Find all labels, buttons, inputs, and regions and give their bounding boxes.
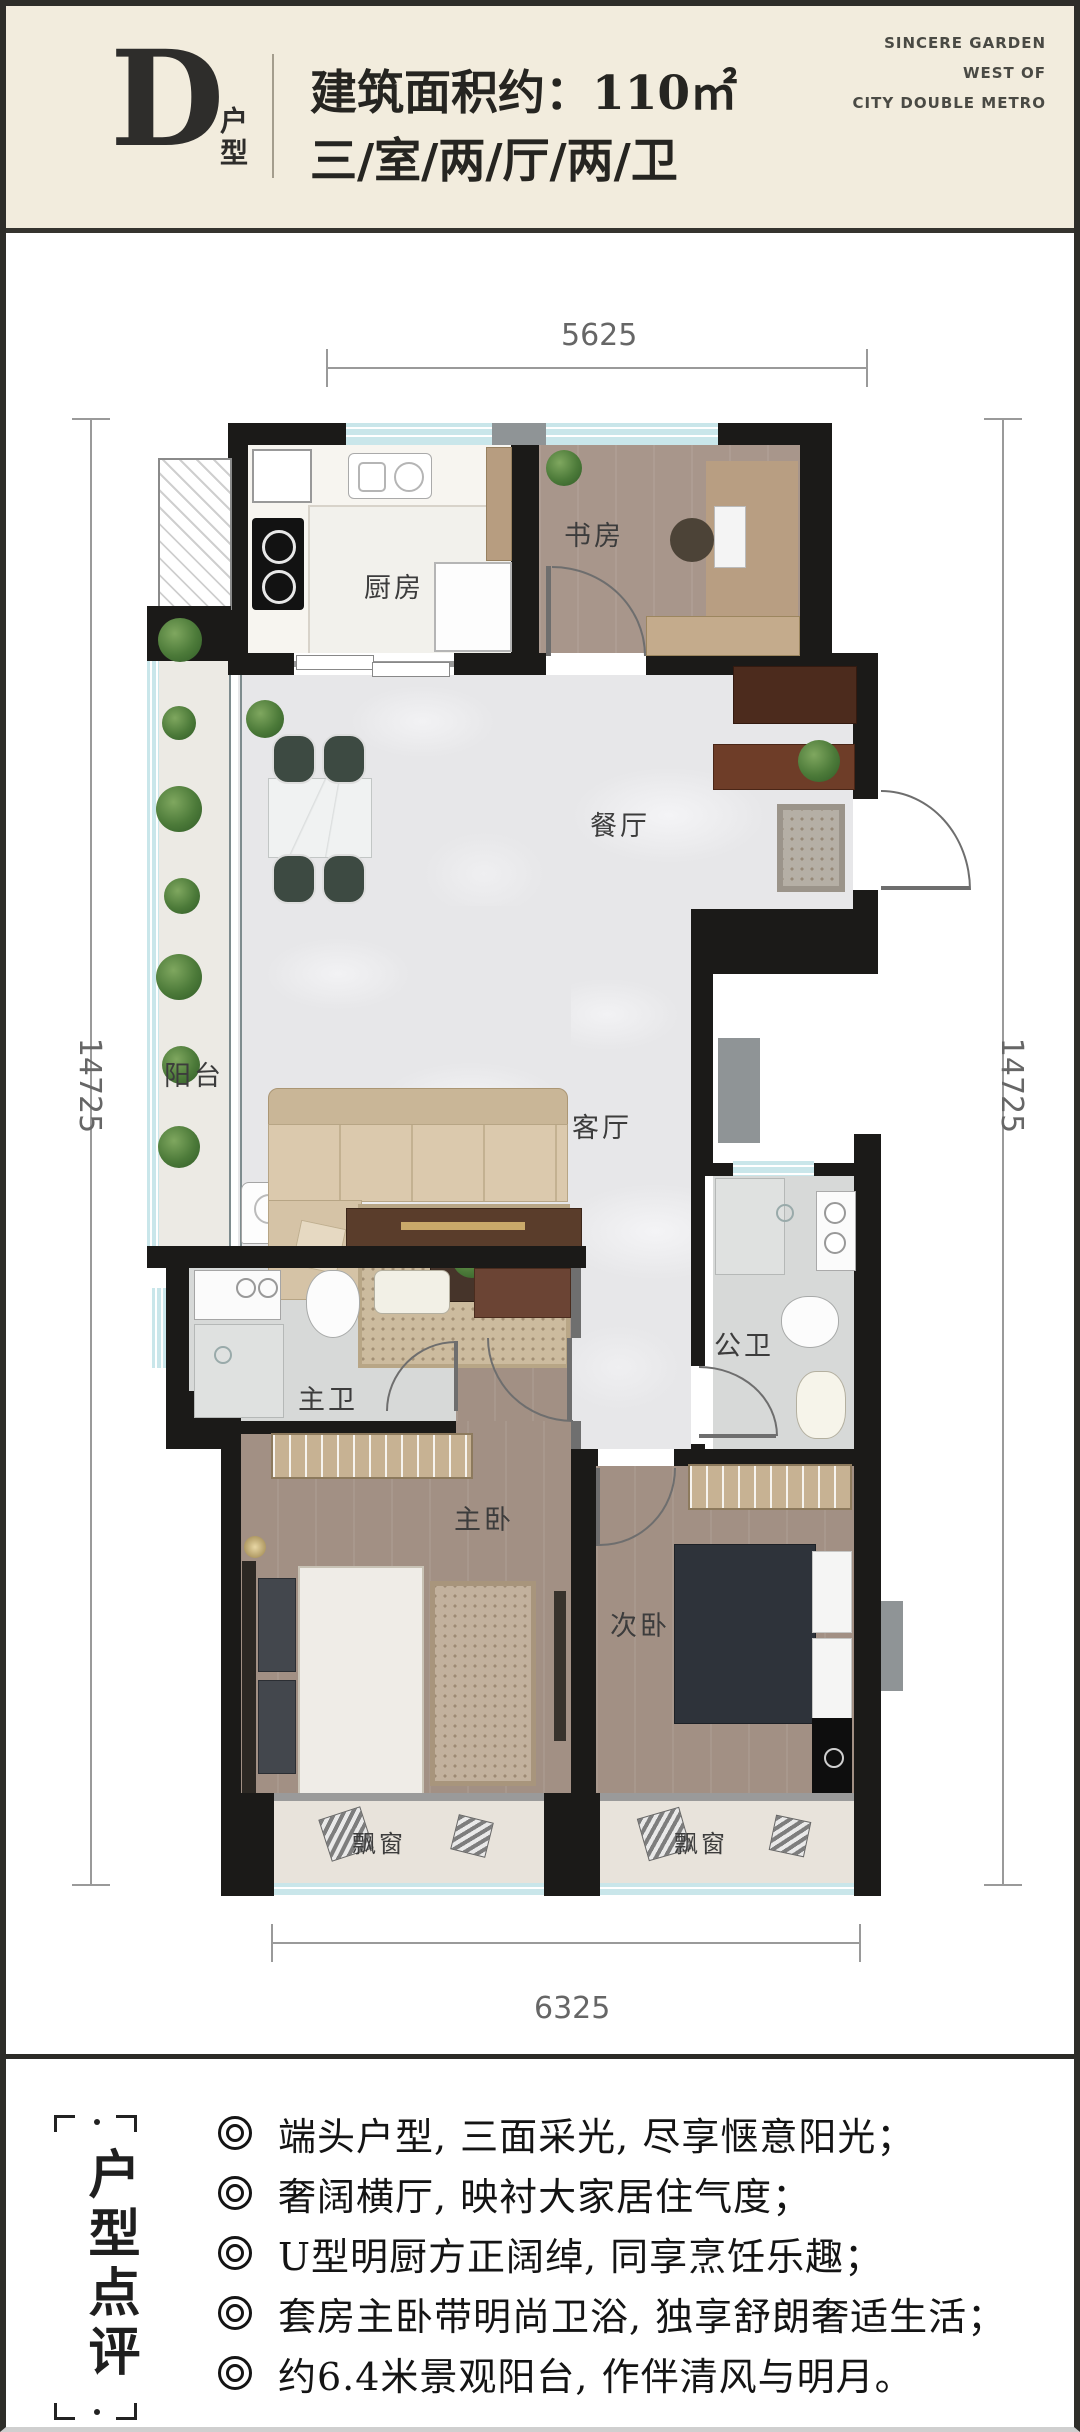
unit-label: 户型 (212, 106, 252, 170)
dim-tick (859, 1924, 861, 1962)
dim-tick (984, 1884, 1022, 1886)
toilet-icon (781, 1296, 839, 1348)
brand-line-2: WEST OF (853, 58, 1046, 88)
review-bullet: 端头户型, 三面采光, 尽享惬意阳光； (218, 2107, 915, 2159)
bullet-text: 奢阔横厅, 映衬大家居住气度； (278, 2166, 811, 2221)
plant (246, 700, 284, 738)
wall-segment (511, 445, 539, 653)
plant (158, 1126, 200, 1168)
wall-segment (221, 1449, 241, 1793)
basin-icon (258, 1278, 278, 1298)
layout-line: 三/室/两/厅/两/卫 (310, 122, 678, 191)
label-bay-left: 飘窗 (352, 1824, 406, 1859)
bracket-icon (54, 2403, 75, 2420)
master-dresser (554, 1591, 566, 1741)
entry-door-arc (881, 790, 971, 890)
guest-bath-shower (715, 1178, 785, 1275)
dim-tick (271, 1924, 273, 1962)
bullet-text: 套房主卧带明尚卫浴, 独享舒朗奢适生活； (278, 2286, 1006, 2341)
ac-platform (158, 458, 232, 610)
dim-tick (866, 349, 868, 387)
wall-segment (228, 653, 294, 675)
study-window (546, 423, 718, 445)
wall-lamp (244, 1536, 266, 1558)
label-bay-right: 飘窗 (674, 1824, 728, 1859)
sliding-door-panel (296, 655, 374, 670)
dim-tick (326, 349, 328, 387)
master-wardrobe (271, 1433, 473, 1479)
fan-icon (824, 1748, 844, 1768)
bay-pillow (769, 1815, 812, 1858)
kitchen-tall-cabinet (486, 447, 512, 561)
wall-segment (228, 423, 346, 445)
wall-segment (691, 909, 878, 974)
bullet-text: U型明厨方正阔绰, 同享烹饪乐趣； (278, 2226, 883, 2281)
dining-chair (272, 734, 316, 784)
wall-segment (221, 1793, 274, 1896)
dim-tick (72, 1884, 110, 1886)
bay-sill (274, 1793, 544, 1801)
brand-line-1: SINCERE GARDEN (853, 28, 1046, 58)
kitchen-appliance (252, 449, 312, 503)
bed-headboard (242, 1561, 256, 1796)
dim-tick (72, 418, 110, 420)
wall-segment (691, 974, 713, 1163)
kitchen-window (346, 423, 492, 445)
bullet-text: 端头户型, 三面采光, 尽享惬意阳光； (278, 2106, 915, 2161)
label-dining: 餐厅 (590, 804, 650, 843)
dim-tick (984, 418, 1022, 420)
review-bullet: 约6.4米景观阳台, 作伴清风与明月。 (218, 2347, 914, 2399)
bullseye-icon (218, 2296, 252, 2330)
bed-pillow (258, 1680, 296, 1774)
dim-left-line (90, 418, 92, 1886)
wall-segment (718, 423, 832, 445)
master-bed-duvet (298, 1566, 424, 1795)
study-shelf (646, 616, 800, 656)
guest-bath-window (733, 1161, 814, 1176)
plant (156, 954, 202, 1000)
label-second-bedroom: 次卧 (610, 1604, 670, 1643)
desk-monitor (714, 506, 746, 568)
bracket-icon (54, 2115, 75, 2132)
plant (158, 618, 202, 662)
wall-segment (571, 1449, 596, 1793)
sofa-back (268, 1088, 568, 1126)
bay-window-glass (600, 1883, 854, 1897)
dim-top-line (326, 367, 868, 369)
bed-pillow (812, 1551, 852, 1633)
wall-segment (853, 890, 878, 909)
shower-head-icon (214, 1346, 232, 1364)
toilet-icon (306, 1270, 360, 1338)
master-bath-sink (374, 1270, 450, 1314)
wall-segment (800, 443, 832, 655)
second-wardrobe (688, 1464, 852, 1510)
sink-basin (358, 462, 386, 492)
basin-icon (236, 1278, 256, 1298)
bracket-dot (94, 2119, 100, 2125)
unit-letter: D (110, 34, 224, 166)
review-section: 户型点评 端头户型, 三面采光, 尽享惬意阳光； 奢阔横厅, 映衬大家居住气度；… (6, 2054, 1074, 2432)
dim-bottom-line (271, 1942, 861, 1944)
brand-line-3: CITY DOUBLE METRO (853, 88, 1046, 118)
wall-segment (166, 1268, 189, 1393)
bullseye-icon (218, 2176, 252, 2210)
tv-console-detail (401, 1222, 525, 1230)
bed-pillow (258, 1578, 296, 1672)
burner-icon (262, 530, 296, 564)
bed-pillow (812, 1638, 852, 1720)
desk-chair (670, 518, 714, 562)
basin-icon (824, 1202, 846, 1224)
dim-right-line (1002, 418, 1004, 1886)
sliding-door-panel (372, 662, 450, 677)
bay-window-glass (274, 1883, 544, 1897)
bullseye-icon (218, 2236, 252, 2270)
guest-bath-sink (796, 1371, 846, 1439)
dining-chair (272, 854, 316, 904)
wall-segment (454, 653, 546, 675)
bullet-text: 约6.4米景观阳台, 作伴清风与明月。 (278, 2346, 914, 2401)
fridge (434, 562, 512, 652)
basin-icon (824, 1232, 846, 1254)
wall-segment (166, 1246, 586, 1268)
sofa-seat (268, 1124, 568, 1202)
dining-table (268, 778, 372, 858)
label-guest-bath: 公卫 (714, 1324, 774, 1363)
wall-segment (854, 1134, 881, 1881)
review-bullet: 套房主卧带明尚卫浴, 独享舒朗奢适生活； (218, 2287, 1006, 2339)
bullseye-icon (218, 2116, 252, 2150)
label-kitchen: 厨房 (364, 566, 424, 605)
bullseye-icon (218, 2356, 252, 2390)
bay-sill (600, 1793, 854, 1801)
balcony-window (147, 661, 159, 1246)
bay-left-floor (274, 1799, 544, 1883)
wall-segment (691, 1176, 705, 1366)
plant (164, 878, 200, 914)
sink-basin (394, 462, 424, 492)
area-line: 建筑面积约：110㎡ (310, 54, 737, 123)
corridor-cabinet (474, 1268, 571, 1318)
balcony-glass-wall (229, 675, 242, 1246)
ac-ledge (881, 1601, 903, 1691)
bracket-dot (94, 2409, 100, 2415)
review-title: 户型点评 (72, 2147, 147, 2383)
dining-chair (322, 854, 366, 904)
label-balcony: 阳台 (164, 1054, 224, 1093)
label-study: 书房 (564, 514, 624, 553)
header: D 户型 建筑面积约：110㎡ 三/室/两/厅/两/卫 SINCERE GARD… (6, 6, 1074, 233)
bedroom-rug (430, 1581, 536, 1786)
hall-floor (571, 906, 691, 1449)
plant (156, 786, 202, 832)
dim-left-value: 14725 (72, 1038, 107, 1133)
dining-chair (322, 734, 366, 784)
header-divider (272, 54, 274, 178)
label-living: 客厅 (572, 1106, 632, 1145)
dim-right-value: 14725 (994, 1038, 1029, 1133)
label-master-bath: 主卫 (298, 1378, 358, 1417)
wall-segment (854, 1793, 881, 1896)
wall-segment (544, 1793, 600, 1896)
master-bath-window (152, 1288, 166, 1368)
review-bullet: U型明厨方正阔绰, 同享烹饪乐趣； (218, 2227, 883, 2279)
dim-top-value: 5625 (561, 318, 637, 353)
second-bed-duvet (674, 1544, 816, 1724)
bracket-icon (116, 2115, 137, 2132)
label-master-bedroom: 主卧 (454, 1498, 514, 1537)
plant (162, 706, 196, 740)
ac-ledge (718, 1038, 760, 1143)
plant (546, 450, 582, 486)
burner-icon (262, 570, 296, 604)
study-door-leaf (546, 566, 551, 656)
dim-bottom-value: 6325 (534, 1991, 610, 2026)
review-bullet: 奢阔横厅, 映衬大家居住气度； (218, 2167, 811, 2219)
bracket-icon (116, 2403, 137, 2420)
wall-thin (571, 1268, 581, 1338)
entry-rug (777, 804, 845, 892)
wall-thin (571, 1421, 581, 1449)
shoe-cabinet (733, 666, 857, 724)
shower-head-icon (776, 1204, 794, 1222)
master-bath-shower (194, 1324, 284, 1418)
plant (798, 740, 840, 782)
brand-text: SINCERE GARDEN WEST OF CITY DOUBLE METRO (853, 28, 1046, 118)
window-mullion (492, 423, 546, 445)
floorplan-card: D 户型 建筑面积约：110㎡ 三/室/两/厅/两/卫 SINCERE GARD… (0, 0, 1080, 2432)
